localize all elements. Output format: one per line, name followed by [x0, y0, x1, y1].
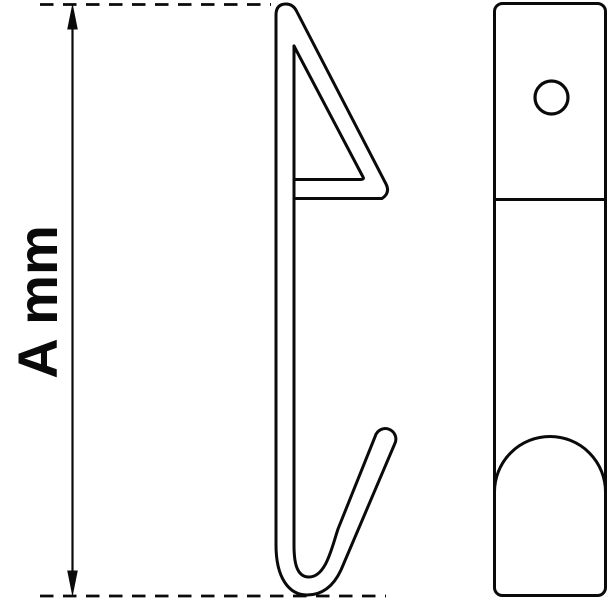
screw-hole	[535, 81, 568, 114]
dimension-label: A mm	[6, 225, 69, 379]
front-view	[495, 4, 606, 596]
technical-drawing-canvas: A mm	[0, 0, 609, 600]
front-plate	[495, 4, 606, 596]
drawing-strokes: A mm	[6, 3, 606, 597]
dimension-annotation: A mm	[6, 3, 386, 597]
hook-technical-drawing: A mm	[0, 0, 609, 600]
arrowhead-up-icon	[67, 3, 78, 30]
side-flag-inner-triangle	[294, 46, 363, 180]
arrowhead-down-icon	[67, 571, 78, 598]
side-profile-view	[276, 4, 396, 595]
front-hook-arch	[495, 437, 606, 492]
